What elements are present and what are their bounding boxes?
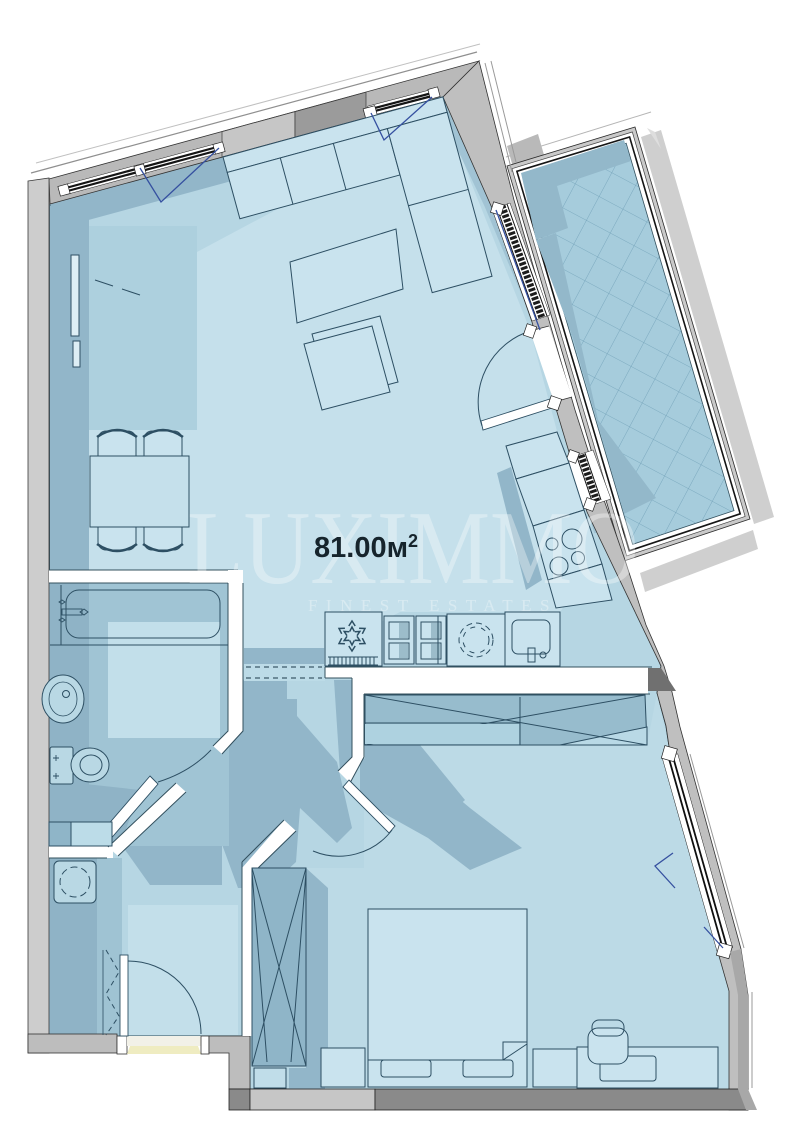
svg-text:FINEST ESTATES: FINEST ESTATES	[308, 596, 558, 615]
svg-text:81.00м2: 81.00м2	[314, 531, 418, 564]
